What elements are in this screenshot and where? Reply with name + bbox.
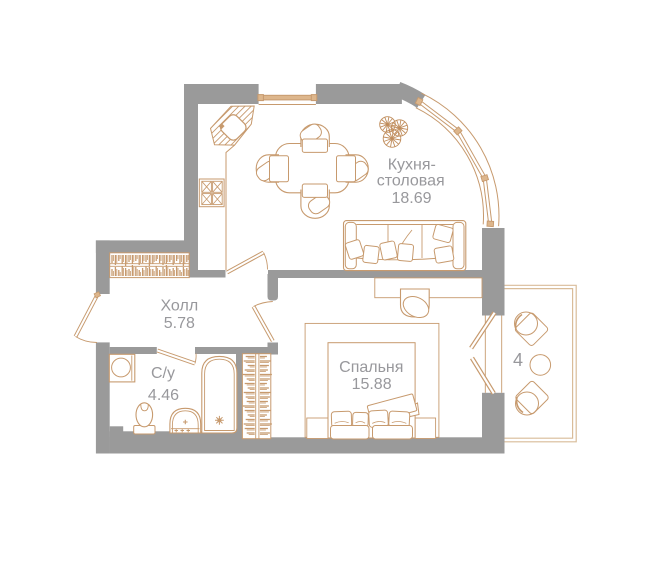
svg-text:Кухня-: Кухня- <box>388 156 436 173</box>
svg-text:С/у: С/у <box>151 365 175 382</box>
svg-text:Спальня: Спальня <box>339 359 403 376</box>
svg-text:столовая: столовая <box>377 173 445 190</box>
svg-text:18.69: 18.69 <box>391 190 431 207</box>
svg-text:5.78: 5.78 <box>164 315 195 332</box>
svg-text:4.46: 4.46 <box>148 387 179 404</box>
svg-text:4: 4 <box>513 350 523 370</box>
svg-text:15.88: 15.88 <box>352 376 392 393</box>
svg-text:Холл: Холл <box>160 298 198 315</box>
